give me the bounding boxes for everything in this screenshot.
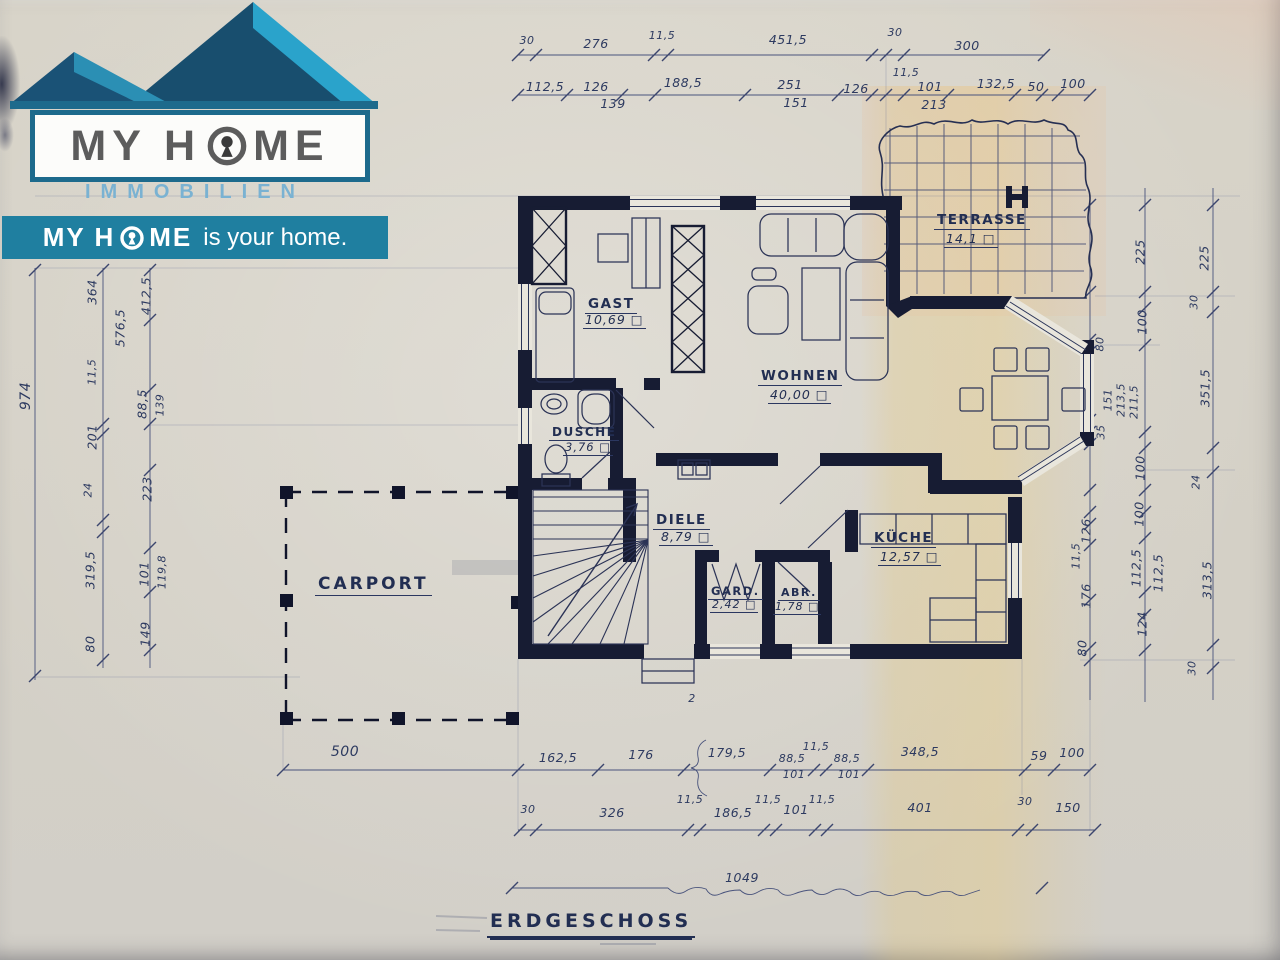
dim-label: 401 bbox=[907, 800, 932, 815]
dim-label: 201 bbox=[85, 424, 100, 449]
dim-label: 11,5 bbox=[803, 740, 830, 753]
dim-label: 11,5 bbox=[649, 29, 676, 42]
room-label-diele: DIELE bbox=[653, 512, 710, 530]
dim-label: 11,5 bbox=[86, 359, 99, 386]
dim-label: 300 bbox=[954, 38, 979, 53]
dim-label: 188,5 bbox=[664, 75, 702, 90]
dim-label: 364 bbox=[85, 279, 100, 304]
dim-label: 11,5 bbox=[809, 793, 836, 806]
terrace-drain bbox=[1006, 186, 1028, 208]
dim-label: 30 bbox=[521, 803, 536, 816]
room-area-dusche: 3,76 □ bbox=[563, 440, 613, 456]
room-label-dusche: DUSCHE bbox=[549, 425, 619, 441]
dim-label: 88,5 bbox=[779, 752, 806, 765]
dim-label: 30 bbox=[1186, 661, 1199, 676]
dim-label: 35 bbox=[1095, 425, 1108, 440]
dim-label: 348,5 bbox=[901, 744, 939, 759]
blueprint-page: 30 276 11,5 451,5 30 300 112,5 126 139 1… bbox=[0, 0, 1280, 960]
stairs bbox=[533, 490, 648, 644]
room-area-diele: 8,79 □ bbox=[659, 529, 713, 546]
dim-label: 101 bbox=[917, 79, 942, 94]
room-label-kueche: KÜCHE bbox=[871, 530, 936, 548]
dim-label: 225 bbox=[1133, 239, 1148, 264]
dim-label: 30 bbox=[1018, 795, 1033, 808]
dim-label: 211,5 bbox=[1128, 385, 1141, 419]
dim-label: 80 bbox=[83, 636, 98, 653]
room-area-terrasse: 14,1 □ bbox=[944, 231, 998, 248]
dim-label: 151 bbox=[1102, 389, 1115, 412]
tagline-mid: ME bbox=[149, 222, 192, 253]
dim-label: 313,5 bbox=[1200, 561, 1215, 599]
dim-label: 151 bbox=[783, 95, 808, 110]
entry-mark: 2 bbox=[688, 692, 696, 705]
carport-outline bbox=[280, 486, 524, 725]
dim-label: 124 bbox=[1135, 611, 1150, 636]
dim-label: 24 bbox=[1190, 475, 1203, 490]
brand-text-left: MY H bbox=[70, 122, 201, 171]
dim-label: 119,8 bbox=[156, 555, 169, 589]
room-area-gast: 10,69 □ bbox=[583, 312, 646, 329]
dim-label: 11,5 bbox=[755, 793, 782, 806]
dim-label: 213 bbox=[921, 97, 946, 112]
dim-label: 412,5 bbox=[139, 277, 154, 315]
dim-label: 11,5 bbox=[893, 66, 920, 79]
dim-label: 100 bbox=[1133, 455, 1148, 480]
dim-label: 351,5 bbox=[1198, 369, 1213, 407]
dim-label: 223 bbox=[140, 476, 155, 501]
room-area-kueche: 12,57 □ bbox=[878, 549, 941, 566]
room-label-terrasse: TERRASSE bbox=[934, 212, 1030, 230]
dim-label: 251 bbox=[777, 77, 802, 92]
dim-label: 30 bbox=[520, 34, 535, 47]
hatched-shafts bbox=[532, 208, 704, 372]
dim-label: 974 bbox=[18, 382, 34, 410]
keyhole-icon bbox=[207, 126, 247, 166]
plan-title: ERDGESCHOSS bbox=[487, 910, 695, 938]
dim-label: 176 bbox=[628, 747, 653, 762]
dim-label: 150 bbox=[1055, 800, 1080, 815]
logo-tagline-banner: MY H ME is your home. bbox=[2, 216, 388, 259]
dim-label: 101 bbox=[783, 802, 808, 817]
dim-label: 100 bbox=[1059, 745, 1084, 760]
dim-label: 139 bbox=[600, 96, 625, 111]
dim-label: 451,5 bbox=[769, 32, 807, 47]
myhome-logo: MY H ME IMMOBILIEN MY H ME is your home. bbox=[0, 0, 420, 270]
dim-label: 126 bbox=[583, 79, 608, 94]
dim-label: 132,5 bbox=[977, 76, 1015, 91]
dim-label: 500 bbox=[331, 744, 359, 760]
dim-label: 100 bbox=[1132, 501, 1147, 526]
room-label-abstell: ABR. bbox=[778, 586, 820, 601]
dim-label: 576,5 bbox=[113, 309, 128, 347]
dim-label: 50 bbox=[1028, 79, 1045, 94]
dim-label: 176 bbox=[1079, 583, 1094, 608]
dim-label: 326 bbox=[599, 805, 624, 820]
tagline-prefix: MY H bbox=[43, 222, 116, 253]
dim-label: 100 bbox=[1135, 309, 1150, 334]
dim-label: 30 bbox=[888, 26, 903, 39]
room-label-wohnen: WOHNEN bbox=[758, 368, 842, 386]
dim-label: 213,5 bbox=[1115, 383, 1128, 417]
dim-label: 88,5 bbox=[834, 752, 861, 765]
dim-label: 100 bbox=[1060, 76, 1085, 91]
dim-label: 186,5 bbox=[714, 805, 752, 820]
dim-label: 149 bbox=[138, 621, 153, 646]
dim-label: 126 bbox=[843, 81, 868, 96]
dim-label: 88,5 bbox=[135, 389, 150, 419]
dim-label: 101 bbox=[137, 561, 152, 586]
keyhole-icon bbox=[120, 226, 144, 250]
dim-label: 319,5 bbox=[83, 551, 98, 589]
dim-label: 30 bbox=[1188, 295, 1201, 310]
dim-label: 80 bbox=[1075, 640, 1090, 657]
dim-label: 24 bbox=[82, 483, 95, 498]
terrace-grid bbox=[884, 124, 1086, 294]
dim-label: 11,5 bbox=[1070, 543, 1083, 570]
brand-text-right: ME bbox=[253, 122, 330, 171]
tagline-suffix: is your home. bbox=[203, 224, 347, 252]
logo-subtitle: IMMOBILIEN bbox=[30, 181, 360, 204]
dim-label: 80 bbox=[1094, 337, 1107, 352]
dim-label: 225 bbox=[1197, 245, 1212, 270]
dim-label: 11,5 bbox=[677, 793, 704, 806]
dim-label: 139 bbox=[154, 394, 167, 417]
dim-label: 179,5 bbox=[708, 745, 746, 760]
dim-label: 276 bbox=[583, 36, 608, 51]
dim-label: 112,5 bbox=[1129, 549, 1144, 587]
room-area-wohnen: 40,00 □ bbox=[768, 387, 831, 404]
logo-wordmark-box: MY H ME bbox=[30, 110, 370, 182]
dim-label: 126 bbox=[1079, 518, 1094, 543]
room-area-gard: 2,42 □ bbox=[710, 598, 758, 613]
dim-label: 112,5 bbox=[1151, 554, 1166, 592]
dim-label: 59 bbox=[1031, 748, 1048, 763]
dim-label: 162,5 bbox=[539, 750, 577, 765]
room-label-carport: CARPORT bbox=[315, 574, 432, 596]
dim-label: 101 bbox=[783, 768, 806, 781]
dim-label: 1049 bbox=[725, 870, 759, 885]
dim-label: 101 bbox=[838, 768, 861, 781]
room-area-abstell: 1,78 □ bbox=[773, 600, 821, 615]
dim-label: 112,5 bbox=[526, 79, 564, 94]
house-roof-icon bbox=[4, 0, 404, 115]
